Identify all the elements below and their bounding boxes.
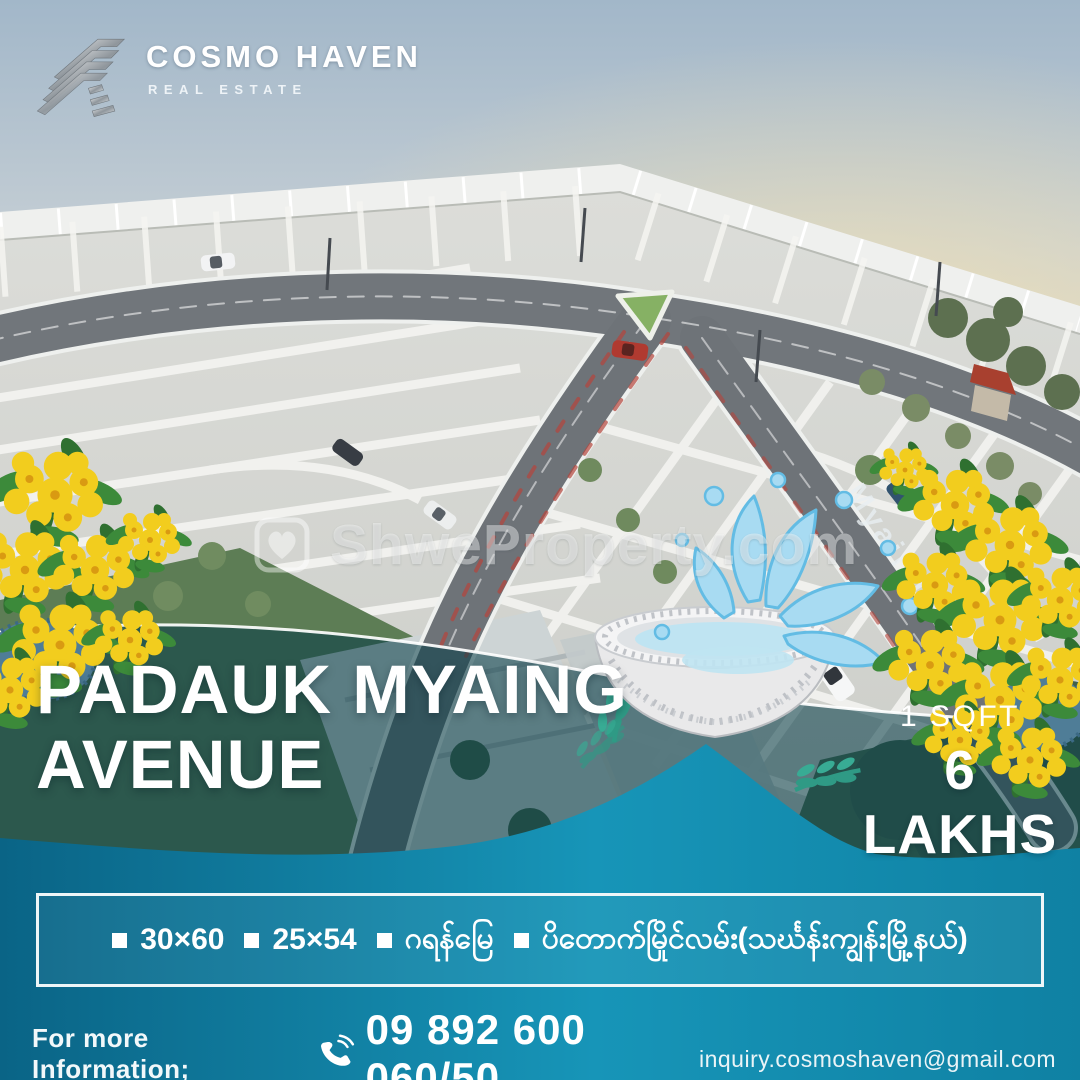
contact-email: inquiry.cosmoshaven@gmail.com xyxy=(699,1036,1056,1073)
spec-label: ဂရန်မြေ xyxy=(405,918,494,963)
spec-label: ပိတောက်မြိုင်လမ်း(သင်္ဃန်းကျွန်းမြို့နယ်… xyxy=(542,918,968,963)
project-title-line2: AVENUE xyxy=(36,727,628,802)
spec-location: ပိတောက်မြိုင်လမ်း(သင်္ဃန်းကျွန်းမြို့နယ်… xyxy=(514,918,968,963)
silver-chevron-logo xyxy=(26,18,130,118)
brand-name: COSMO HAVEN xyxy=(146,39,422,75)
spec-plot-size-1: 30×60 xyxy=(112,923,224,957)
price-block: 1 SQFT 6 LAKHS xyxy=(852,700,1068,866)
project-title-line1: PADAUK MYAING xyxy=(36,652,628,727)
contact-phone-number: 09 892 600 060/50 xyxy=(366,1006,681,1080)
contact-footer: For more Information; 09 892 600 060/50 … xyxy=(32,1006,1056,1080)
spec-plot-size-2: 25×54 xyxy=(244,923,356,957)
brand-tagline: REAL ESTATE xyxy=(148,82,422,97)
bullet-square-icon xyxy=(244,933,259,948)
brand-header: COSMO HAVEN REAL ESTATE xyxy=(26,18,422,118)
contact-label: For more Information; xyxy=(32,1023,274,1080)
project-title: PADAUK MYAING AVENUE xyxy=(36,652,628,802)
house-heart-icon xyxy=(250,513,314,577)
price-value: 6 LAKHS xyxy=(852,738,1068,866)
spec-label: 25×54 xyxy=(272,923,356,957)
bullet-square-icon xyxy=(514,933,529,948)
price-unit: 1 SQFT xyxy=(852,700,1068,734)
phone-icon xyxy=(316,1031,355,1077)
spec-land-type: ဂရန်မြေ xyxy=(377,918,494,963)
specs-banner: 30×60 25×54 ဂရန်မြေ ပိတောက်မြိုင်လမ်း(သင… xyxy=(36,893,1044,987)
real-estate-flyer: Myaing St xyxy=(0,0,1080,1080)
spec-label: 30×60 xyxy=(140,923,224,957)
bullet-square-icon xyxy=(112,933,127,948)
watermark-text: ShweProperty.com xyxy=(330,512,858,578)
watermark: ShweProperty.com xyxy=(250,512,858,578)
bullet-square-icon xyxy=(377,933,392,948)
